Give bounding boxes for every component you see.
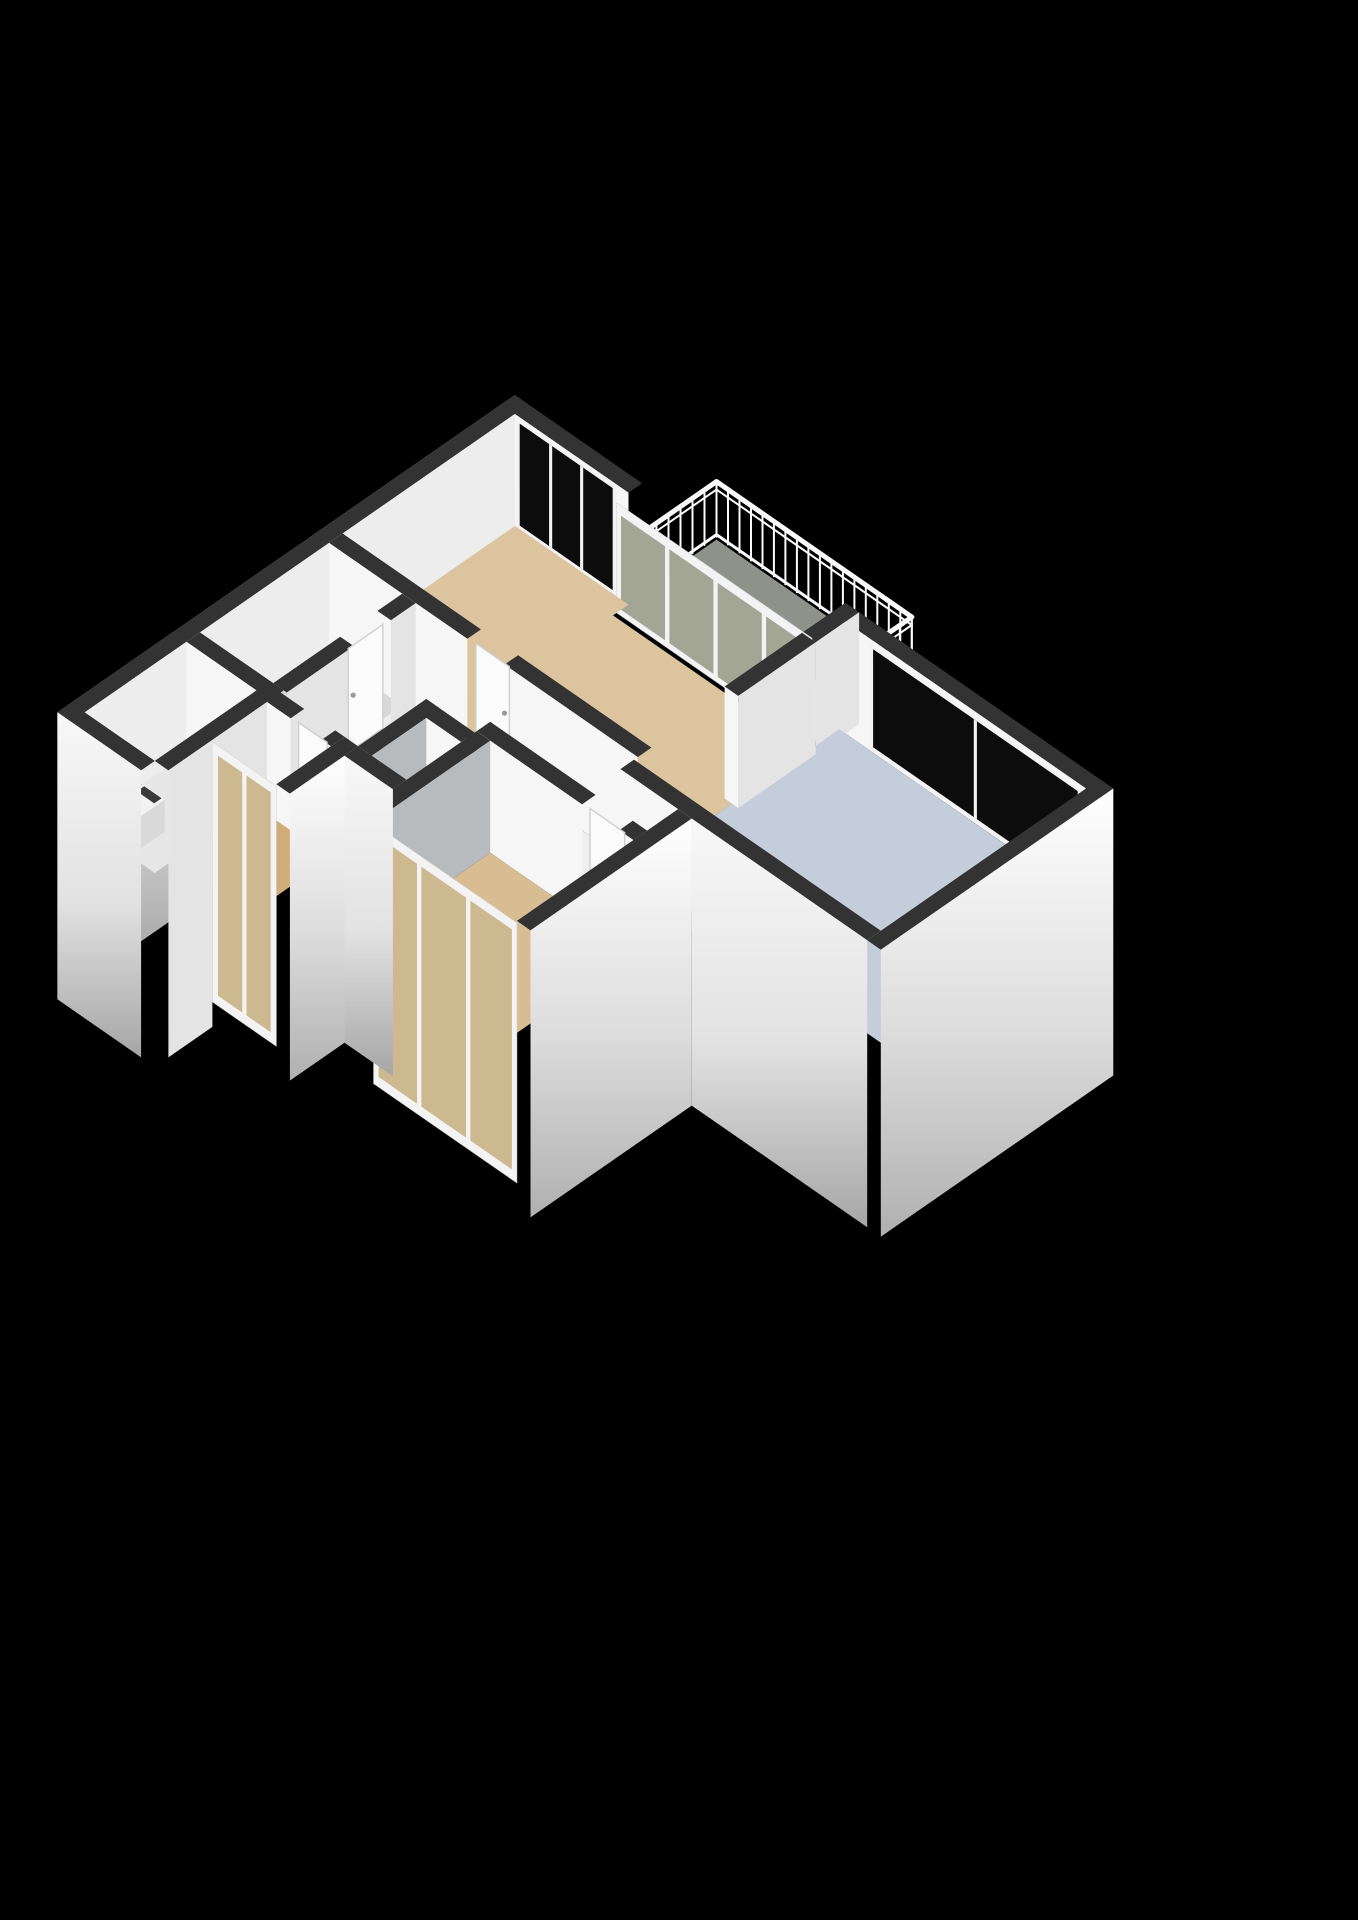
floorplan-render-canvas: [0, 0, 1358, 1920]
kitchen-partition-end: [725, 687, 739, 809]
smallroom-glazed-wall-pane-2: [247, 776, 271, 1033]
storage-room-door-handle: [351, 693, 356, 698]
floorplan-3d-view: [0, 0, 1358, 1920]
wc-south-wall-outer: [345, 756, 393, 1077]
bedroom-glazed-wall-pane-3: [470, 901, 512, 1170]
living-room-tall-window-mullion: [549, 444, 552, 548]
kitchen-window-mullion: [974, 719, 977, 819]
sw-wall-outer: [57, 712, 141, 1057]
living-room-tall-window-mullion: [580, 466, 583, 570]
bedroom-glazed-wall-pane-2: [421, 867, 466, 1138]
laundry-smallroom-wall-face-outer: [168, 740, 212, 1058]
smallroom-glazed-wall-pane-1: [218, 756, 242, 1013]
smallroom-east-wall-outer: [290, 756, 345, 1081]
living-room-door-handle: [502, 711, 507, 716]
